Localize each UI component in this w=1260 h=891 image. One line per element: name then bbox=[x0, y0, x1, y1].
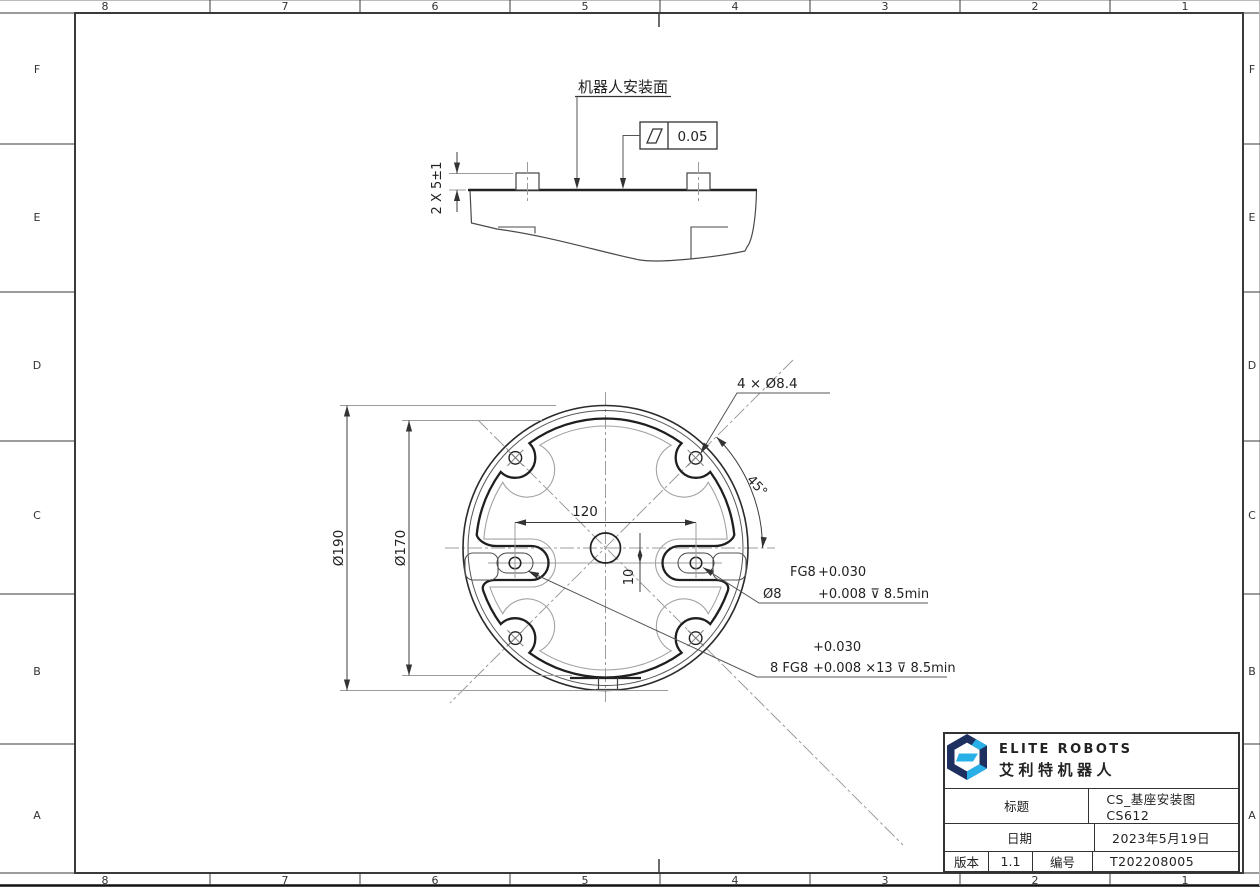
zone-col-5-top: 5 bbox=[570, 0, 600, 13]
mounting-surface-text: 机器人安装面 bbox=[578, 78, 668, 96]
version-row: 版本 1.1 编号 T202208005 bbox=[945, 851, 1238, 871]
title-label: 标题 bbox=[945, 789, 1089, 823]
brand-en-text: ELITE ROBOTS bbox=[999, 742, 1132, 757]
zone-col-4-top: 4 bbox=[720, 0, 750, 13]
title-block: ELITE ROBOTS 艾利特机器人 标题 CS_基座安装图 CS612 日期… bbox=[943, 732, 1240, 873]
elite-logo: ELITE ROBOTS 艾利特机器人 bbox=[945, 734, 1165, 784]
zone-row-d-right: D bbox=[1244, 359, 1260, 373]
callout-pin-fit8-lower: +0.008 ×13 ⊽ 8.5min bbox=[813, 661, 956, 676]
dim-pin-offset-text: 10 bbox=[622, 569, 637, 586]
version-value: 1.1 bbox=[989, 852, 1033, 871]
zone-row-e-left: E bbox=[29, 211, 45, 225]
callout-pin-fit-dia: Ø8 bbox=[763, 587, 782, 602]
version-label: 版本 bbox=[945, 852, 989, 871]
brand-row: ELITE ROBOTS 艾利特机器人 bbox=[945, 734, 1238, 788]
date-value: 2023年5月19日 bbox=[1095, 824, 1210, 851]
base-profile-outline bbox=[470, 190, 757, 261]
date-row: 日期 2023年5月19日 bbox=[945, 823, 1238, 851]
callout-pin-fit8-prefix: 8 FG8 bbox=[770, 661, 808, 676]
drawing-sheet: 2 X 5±1 机器人安装面 0.05 bbox=[0, 0, 1260, 891]
callout-pin-fit8-upper: +0.030 bbox=[813, 640, 861, 655]
dim-pin-spacing-text: 120 bbox=[572, 504, 598, 520]
zone-col-8-top: 8 bbox=[90, 0, 120, 13]
top-view: Ø190 Ø170 120 10 45° bbox=[331, 360, 956, 845]
dim-outer-text: Ø190 bbox=[331, 530, 347, 566]
zone-col-5-bottom: 5 bbox=[570, 874, 600, 887]
zone-row-a-right: A bbox=[1244, 809, 1260, 823]
zone-col-6-top: 6 bbox=[420, 0, 450, 13]
zone-col-6-bottom: 6 bbox=[420, 874, 450, 887]
zone-col-1-top: 1 bbox=[1170, 0, 1200, 13]
side-view: 2 X 5±1 机器人安装面 0.05 bbox=[430, 78, 757, 261]
zone-col-3-top: 3 bbox=[870, 0, 900, 13]
side-pocket-left bbox=[465, 553, 498, 580]
callout-pin-fit: FG8 +0.030 Ø8 +0.008 ⊽ 8.5min bbox=[701, 565, 929, 603]
callout-pin-fit-name: FG8 bbox=[790, 565, 816, 580]
side-pocket-right bbox=[713, 553, 746, 580]
dim-outer-diameter: Ø190 bbox=[331, 406, 350, 691]
title-row: 标题 CS_基座安装图 CS612 bbox=[945, 788, 1238, 823]
zone-col-3-bottom: 3 bbox=[870, 874, 900, 887]
zone-col-4-bottom: 4 bbox=[720, 874, 750, 887]
callout-bolt-holes-text: 4 × Ø8.4 bbox=[737, 376, 798, 392]
brand-cn-text: 艾利特机器人 bbox=[999, 761, 1116, 779]
dim-bolt-circle-text: Ø170 bbox=[393, 530, 409, 566]
dim-pin-height-text: 2 X 5±1 bbox=[430, 162, 445, 215]
zone-row-b-right: B bbox=[1244, 665, 1260, 679]
dim-bolt-circle: Ø170 bbox=[393, 421, 412, 676]
zone-col-8-bottom: 8 bbox=[90, 874, 120, 887]
zone-row-f-right: F bbox=[1244, 63, 1260, 77]
title-value: CS_基座安装图 CS612 bbox=[1089, 789, 1238, 823]
number-label: 编号 bbox=[1033, 852, 1093, 871]
callout-pin-fit-lower: +0.008 ⊽ 8.5min bbox=[818, 587, 929, 602]
zone-row-c-left: C bbox=[29, 509, 45, 523]
zone-col-2-bottom: 2 bbox=[1020, 874, 1050, 887]
flatness-value-text: 0.05 bbox=[677, 129, 707, 145]
zone-row-b-left: B bbox=[29, 665, 45, 679]
dim-angle-text: 45° bbox=[743, 473, 770, 500]
zone-col-1-bottom: 1 bbox=[1170, 874, 1200, 887]
callout-pin-fit-depth: +0.030 8 FG8 +0.008 ×13 ⊽ 8.5min bbox=[527, 568, 956, 677]
zone-row-c-right: C bbox=[1244, 509, 1260, 523]
zone-row-a-left: A bbox=[29, 809, 45, 823]
elite-logo-icon bbox=[947, 734, 987, 780]
zone-col-7-bottom: 7 bbox=[270, 874, 300, 887]
dim-pin-height: 2 X 5±1 bbox=[430, 152, 513, 214]
zone-col-7-top: 7 bbox=[270, 0, 300, 13]
callout-pin-fit-upper: +0.030 bbox=[818, 565, 866, 580]
zone-col-2-top: 2 bbox=[1020, 0, 1050, 13]
zone-row-d-left: D bbox=[29, 359, 45, 373]
zone-row-f-left: F bbox=[29, 63, 45, 77]
date-label: 日期 bbox=[945, 824, 1095, 851]
callout-bolt-holes: 4 × Ø8.4 bbox=[698, 376, 830, 455]
zone-row-e-right: E bbox=[1244, 211, 1260, 225]
number-value: T202208005 bbox=[1093, 852, 1194, 871]
